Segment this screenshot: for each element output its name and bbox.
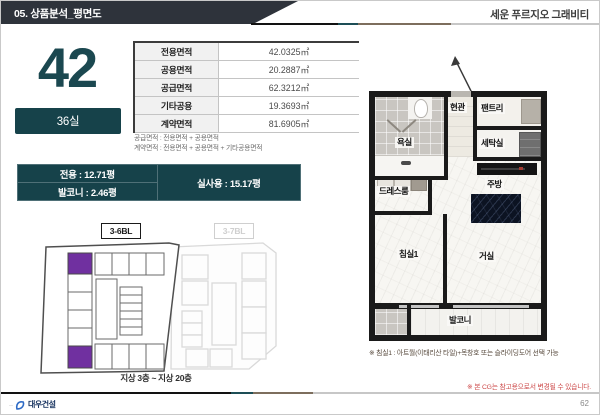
exclusive-pyeong: 전용 : 12.71평	[18, 165, 158, 183]
footer-rule-teal	[231, 392, 253, 394]
site-plan	[16, 241, 301, 376]
page-number: 62	[580, 399, 589, 408]
logo-marks: ‥	[9, 401, 12, 408]
room-label-dressroom: 드레스룸	[377, 186, 410, 197]
highlighted-unit-top	[68, 253, 92, 274]
wall-dressroom-bedroom	[375, 211, 432, 215]
active-block-outline	[41, 243, 179, 373]
room-label-bedroom1: 침실1	[397, 249, 420, 260]
area-value: 19.3693㎡	[219, 97, 360, 115]
area-label: 공용면적	[134, 61, 219, 79]
pyeong-table: 전용 : 12.71평 실사용 : 15.17평 발코니 : 2.46평	[17, 164, 301, 201]
room-label-living: 거실	[477, 251, 496, 262]
room-label-pantry: 팬트리	[479, 103, 505, 114]
cg-disclaimer-note: ※ 본 CG는 참고용으로서 변경될 수 있습니다.	[467, 381, 591, 391]
toilet-bowl	[414, 99, 428, 118]
daewoo-logo-icon	[15, 400, 25, 410]
header-rule-brown	[358, 23, 451, 25]
table-row: 계약면적 81.6905㎡	[134, 115, 359, 133]
area-label: 전용면적	[134, 42, 219, 61]
wall-dressroom-hall	[428, 180, 432, 214]
inactive-block-outline	[171, 243, 276, 369]
block-label-active: 3-6BL	[101, 223, 141, 239]
room-label-laundry: 세탁실	[479, 138, 505, 149]
balcony-floor	[411, 309, 541, 335]
header-rule-gray	[451, 23, 600, 25]
floor-range: 지상 3층 ~ 지상 20층	[56, 372, 256, 384]
header-rule-black	[251, 23, 338, 25]
slide: 05. 상품분석_평면도 세운 푸르지오 그래비티 42 36실 전용면적 42…	[0, 0, 600, 415]
wall-bedroom-living	[443, 214, 447, 305]
room-label-entrance: 현관	[448, 102, 467, 113]
project-title: 세운 푸르지오 그래비티	[490, 7, 589, 22]
kitchen-marble-floor	[471, 194, 521, 223]
table-row: 공용면적 20.2887㎡	[134, 61, 359, 79]
table-row: 공급면적 62.3212㎡	[134, 79, 359, 97]
block-label-inactive: 3-7BL	[214, 223, 254, 239]
area-value: 62.3212㎡	[219, 79, 360, 97]
formula-line: 계약면적 : 전용면적 + 공용면적 + 기타공용면적	[134, 144, 262, 154]
kitchen-cooktop-dot	[519, 167, 523, 170]
area-value: 20.2887㎡	[219, 61, 360, 79]
floor-plan: 현관 팬트리 욕실 세탁실 주방 드레스룸 침실1 거실 발코니	[369, 91, 547, 341]
section-title: 05. 상품분석_평면도	[14, 6, 101, 21]
footer-rule-black	[1, 392, 231, 394]
wall-laundry-kitchen	[473, 157, 541, 161]
area-value: 81.6905㎡	[219, 115, 360, 133]
actual-use-pyeong: 실사용 : 15.17평	[157, 165, 300, 201]
area-label: 계약면적	[134, 115, 219, 133]
room-count-badge: 36실	[15, 108, 121, 134]
area-label: 기타공용	[134, 97, 219, 115]
room-label-bathroom: 욕실	[395, 137, 414, 148]
wall-right	[541, 91, 547, 341]
wall-pantry-laundry	[473, 126, 541, 130]
balcony-pyeong: 발코니 : 2.46평	[18, 183, 158, 201]
room-label-balcony: 발코니	[447, 315, 473, 326]
formula-line: 공급면적 : 전용면적 + 공용면적	[134, 134, 262, 144]
vanity-sink	[401, 161, 411, 165]
area-label: 공급면적	[134, 79, 219, 97]
dress-cabinet-3	[411, 179, 427, 191]
ac-unit-floor	[375, 305, 407, 335]
wall-ac-balcony	[407, 305, 411, 335]
table-row: 전용면적 42.0325㎡	[134, 42, 359, 61]
area-table: 전용면적 42.0325㎡ 공용면적 20.2887㎡ 공급면적 62.3212…	[133, 41, 359, 133]
wall-bathroom-dressroom	[375, 176, 448, 180]
area-value: 42.0325㎡	[219, 42, 360, 61]
pantry-cabinet	[521, 99, 541, 124]
table-row: 기타공용 19.3693㎡	[134, 97, 359, 115]
unit-type-number: 42	[9, 39, 125, 98]
vanity-counter	[375, 155, 444, 177]
company-logo: ‥ 대우건설	[9, 399, 55, 410]
bedroom-option-note: ※ 침실1 : 아트월(이태리산 타일)+목창호 또는 슬라이딩도어 선택 가능	[369, 347, 559, 357]
window-living	[453, 305, 529, 308]
footer-rule-gray	[313, 392, 600, 394]
highlighted-unit-bottom	[68, 346, 92, 368]
header-rule-teal	[338, 23, 358, 25]
room-label-kitchen: 주방	[485, 179, 504, 190]
area-formulas: 공급면적 : 전용면적 + 공용면적 계약면적 : 전용면적 + 공용면적 + …	[134, 134, 262, 153]
entrance-door	[451, 91, 471, 97]
window-bedroom	[399, 305, 439, 308]
company-name: 대우건설	[28, 399, 55, 410]
washer-unit	[519, 132, 541, 157]
footer-rule-brown	[253, 392, 313, 394]
wall-bottom	[369, 335, 547, 341]
